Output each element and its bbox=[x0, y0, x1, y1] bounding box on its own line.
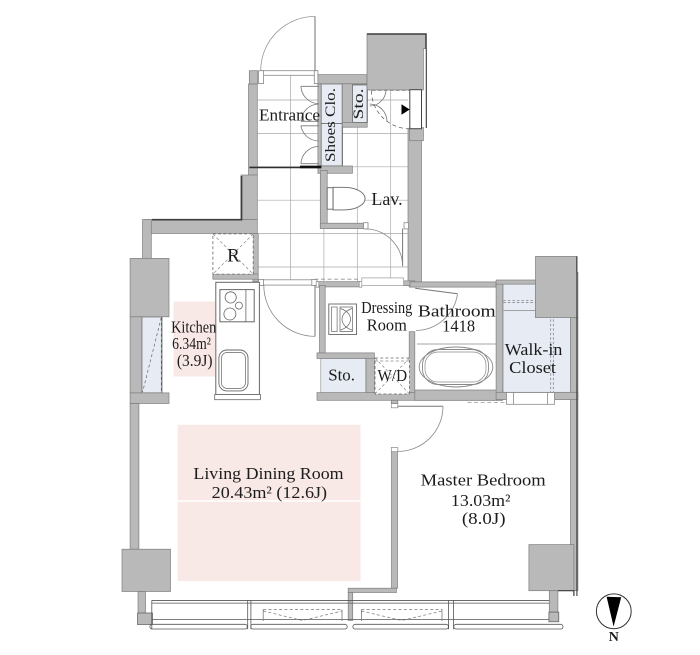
svg-text:(3.9J): (3.9J) bbox=[177, 351, 213, 370]
svg-text:Sto.: Sto. bbox=[328, 365, 355, 384]
svg-text:Master Bedroom: Master Bedroom bbox=[421, 470, 546, 489]
svg-text:(8.0J): (8.0J) bbox=[462, 509, 506, 528]
svg-text:N: N bbox=[609, 630, 619, 645]
svg-text:Living Dining Room: Living Dining Room bbox=[193, 464, 343, 483]
svg-text:Sto.: Sto. bbox=[351, 89, 367, 120]
svg-text:Room: Room bbox=[367, 316, 407, 335]
svg-text:R: R bbox=[227, 246, 240, 267]
svg-text:Shoes Clo.: Shoes Clo. bbox=[323, 88, 339, 162]
svg-text:Closet: Closet bbox=[509, 358, 556, 377]
svg-text:1418: 1418 bbox=[442, 316, 475, 335]
svg-text:W/D: W/D bbox=[378, 366, 408, 385]
svg-text:Dressing: Dressing bbox=[361, 298, 412, 317]
svg-text:Walk-in: Walk-in bbox=[505, 340, 563, 359]
svg-text:13.03m²: 13.03m² bbox=[451, 491, 511, 510]
svg-text:20.43m² (12.6J): 20.43m² (12.6J) bbox=[212, 483, 327, 502]
svg-text:Lav.: Lav. bbox=[371, 189, 402, 209]
svg-text:Entrance: Entrance bbox=[259, 106, 320, 125]
